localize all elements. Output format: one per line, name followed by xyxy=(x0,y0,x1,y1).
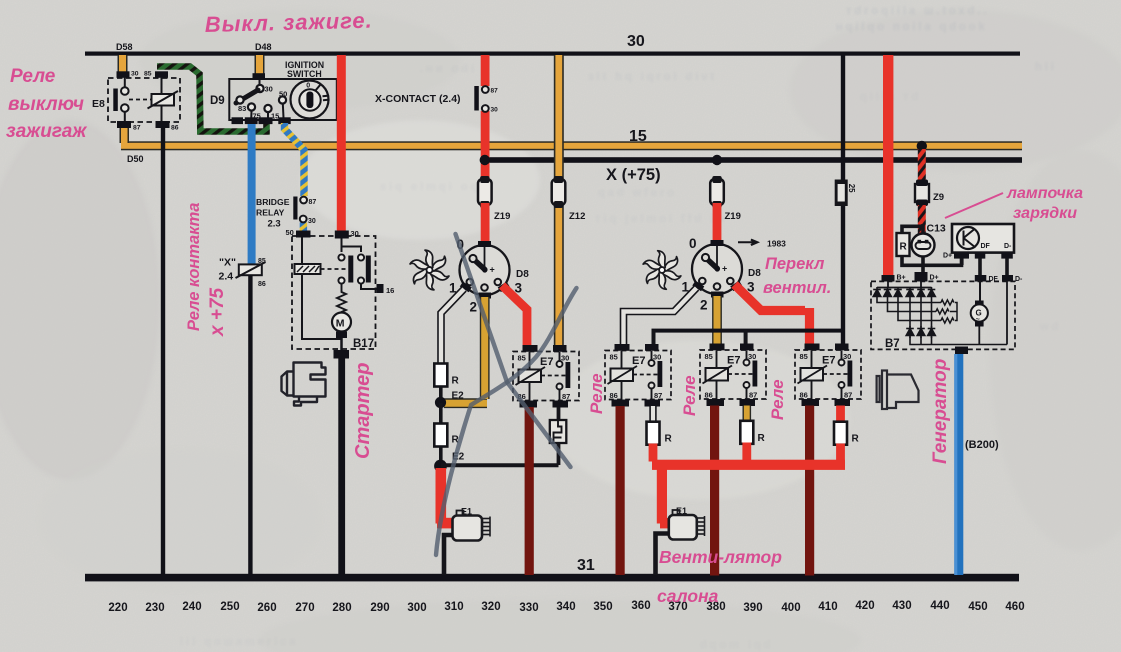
svg-text:BRIDGE: BRIDGE xyxy=(256,197,290,207)
svg-text:.ни оdi: .ни оdi xyxy=(420,63,477,75)
svg-text:87: 87 xyxy=(309,199,317,206)
svg-text:E7: E7 xyxy=(540,356,553,368)
svg-text:R: R xyxy=(452,376,460,387)
svg-text:30: 30 xyxy=(351,229,359,238)
svg-text:R: R xyxy=(852,434,860,445)
svg-text:Реле: Реле xyxy=(680,375,699,416)
svg-text:220: 220 xyxy=(108,602,127,614)
svg-text:85: 85 xyxy=(518,354,526,363)
svg-text:iil qошamerica: iil qошamerica xyxy=(180,636,298,648)
svg-text:87: 87 xyxy=(133,125,141,132)
svg-text:50: 50 xyxy=(286,228,294,237)
svg-text:2.4: 2.4 xyxy=(219,271,234,283)
svg-text:D+: D+ xyxy=(930,275,939,282)
svg-text:Генератор: Генератор xyxy=(930,359,951,464)
svg-text:лампочка: лампочка xyxy=(1006,185,1083,202)
svg-text:D58: D58 xyxy=(116,42,133,52)
svg-text:выключ: выключ xyxy=(8,94,84,115)
svg-text:X-CONTACT (2.4): X-CONTACT (2.4) xyxy=(375,93,461,105)
svg-text:Перекл: Перекл xyxy=(765,255,824,273)
svg-text:0: 0 xyxy=(689,236,697,251)
svg-text:зажигаж: зажигаж xyxy=(6,121,87,142)
svg-text:430: 430 xyxy=(892,600,911,612)
svg-text:16: 16 xyxy=(386,286,394,295)
svg-text:400: 400 xyxy=(781,602,800,614)
svg-text:30: 30 xyxy=(491,107,499,114)
svg-text:250: 250 xyxy=(220,601,239,613)
svg-text:25: 25 xyxy=(847,184,856,193)
svg-text:тdroqiila ш.tохd..: тdroqiila ш.tохd.. xyxy=(846,5,989,17)
svg-text:D50: D50 xyxy=(127,154,144,164)
svg-text:SWITCH: SWITCH xyxy=(287,69,322,79)
svg-text:+: + xyxy=(722,264,727,274)
svg-text:Выкл. зажиге.: Выкл. зажиге. xyxy=(204,8,373,37)
svg-text:х +75: х +75 xyxy=(207,287,228,337)
svg-text:Реле: Реле xyxy=(10,66,56,87)
svg-text:Реле контакта: Реле контакта xyxy=(185,203,203,331)
svg-text:85: 85 xyxy=(258,258,266,265)
svg-text:31: 31 xyxy=(577,557,595,574)
svg-text:тiq jelmoi ffd iw: тiq jelmoi ffd iw xyxy=(595,213,728,225)
svg-text:86: 86 xyxy=(171,125,179,132)
svg-text:D8: D8 xyxy=(748,268,761,279)
svg-text:D9: D9 xyxy=(210,95,225,107)
svg-text:440: 440 xyxy=(930,600,949,612)
svg-text:M: M xyxy=(336,318,345,330)
svg-text:410: 410 xyxy=(818,601,837,613)
svg-text:2: 2 xyxy=(700,298,708,313)
svg-text:30: 30 xyxy=(265,85,273,94)
svg-text:Реле: Реле xyxy=(768,379,787,420)
svg-text:15: 15 xyxy=(629,128,647,145)
svg-text:460: 460 xyxy=(1005,601,1024,613)
svg-text:Z19: Z19 xyxy=(494,211,510,222)
svg-text:DF: DF xyxy=(981,243,991,250)
svg-text:dqom iqd: dqom iqd xyxy=(700,639,774,651)
svg-text:83: 83 xyxy=(238,104,246,113)
svg-text:"X": "X" xyxy=(219,257,236,269)
svg-text:450: 450 xyxy=(968,601,987,613)
svg-text:салона: салона xyxy=(657,586,719,606)
svg-text:300: 300 xyxy=(407,602,426,614)
svg-text:Z9: Z9 xyxy=(933,192,944,203)
svg-text:310: 310 xyxy=(444,601,463,613)
svg-text:1983: 1983 xyxy=(767,239,786,249)
svg-text:E8: E8 xyxy=(92,98,105,110)
svg-text:87: 87 xyxy=(562,392,570,401)
svg-text:Стартер: Стартер xyxy=(352,363,374,459)
svg-text:нqilqo поila qdook: нqilqo поila qdook xyxy=(836,21,988,33)
svg-text:50: 50 xyxy=(279,90,287,99)
svg-text:E2: E2 xyxy=(452,391,465,402)
svg-text:R: R xyxy=(665,434,673,445)
svg-text:86: 86 xyxy=(258,281,266,288)
svg-text:вентил.: вентил. xyxy=(763,279,831,297)
svg-text:350: 350 xyxy=(593,601,612,613)
svg-text:260: 260 xyxy=(257,602,276,614)
svg-text:D-: D- xyxy=(1015,276,1023,283)
svg-text:2.3: 2.3 xyxy=(268,219,281,230)
svg-text:290: 290 xyxy=(370,602,389,614)
svg-text:D48: D48 xyxy=(255,42,272,52)
svg-text:30: 30 xyxy=(561,354,569,363)
svg-text:B17: B17 xyxy=(353,338,374,350)
svg-text:siq elmqi oqt: siq elmqi oqt xyxy=(380,181,487,193)
svg-text:390: 390 xyxy=(743,602,762,614)
svg-text:wd: wd xyxy=(1039,321,1061,333)
svg-text:D-: D- xyxy=(1004,243,1012,250)
svg-text:RELAY: RELAY xyxy=(256,208,285,218)
svg-text:зlt hq iqrol divt: зlt hq iqrol divt xyxy=(588,71,717,83)
svg-text:qad wfero: qad wfero xyxy=(598,187,677,199)
svg-text:B+: B+ xyxy=(897,275,906,282)
svg-text:hii: hii xyxy=(1035,61,1057,73)
svg-text:360: 360 xyxy=(631,600,650,612)
svg-text:340: 340 xyxy=(556,601,575,613)
svg-text:C13: C13 xyxy=(927,223,946,235)
svg-text:230: 230 xyxy=(145,602,164,614)
svg-text:270: 270 xyxy=(295,602,314,614)
svg-text:D+: D+ xyxy=(943,253,952,260)
svg-text:(B200): (B200) xyxy=(965,439,999,451)
svg-text:D8: D8 xyxy=(516,269,529,280)
svg-text:30: 30 xyxy=(308,218,316,225)
svg-text:B7: B7 xyxy=(885,338,900,350)
svg-text:+: + xyxy=(490,265,495,275)
svg-text:330: 330 xyxy=(519,602,538,614)
svg-text:R: R xyxy=(758,433,766,444)
svg-text:280: 280 xyxy=(332,602,351,614)
svg-text:Z19: Z19 xyxy=(725,211,741,222)
svg-text:87: 87 xyxy=(491,88,499,95)
svg-text:2: 2 xyxy=(470,300,478,315)
svg-text:30: 30 xyxy=(627,33,645,50)
svg-text:420: 420 xyxy=(855,600,874,612)
svg-text:R: R xyxy=(900,242,908,253)
svg-text:0: 0 xyxy=(306,83,310,90)
svg-text:30: 30 xyxy=(131,71,139,78)
svg-text:Венти-лятор: Венти-лятор xyxy=(659,547,782,567)
svg-text:X (+75): X (+75) xyxy=(606,166,661,184)
svg-text:Реле: Реле xyxy=(587,373,606,414)
svg-text:240: 240 xyxy=(182,601,201,613)
svg-text:85: 85 xyxy=(144,71,152,78)
svg-text:Z12: Z12 xyxy=(569,211,585,222)
svg-text:зарядки: зарядки xyxy=(1013,205,1077,222)
svg-text:320: 320 xyxy=(481,601,500,613)
